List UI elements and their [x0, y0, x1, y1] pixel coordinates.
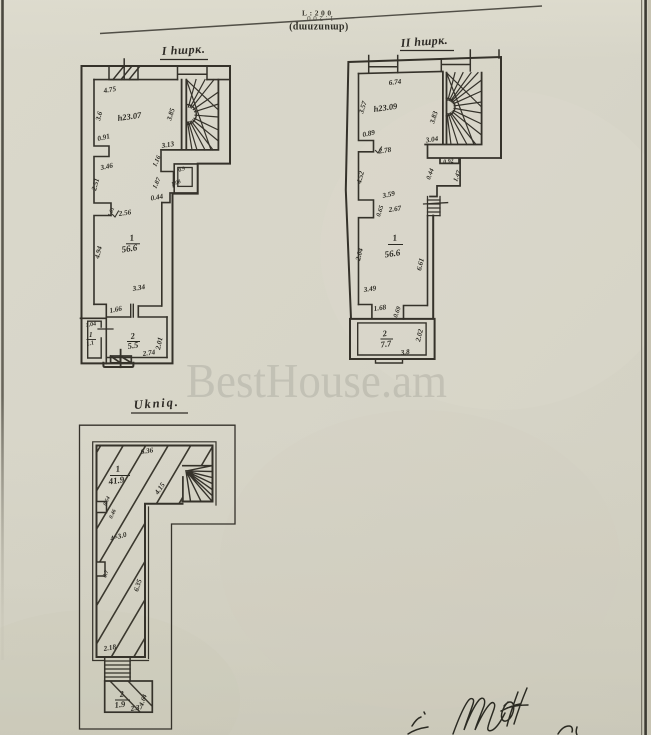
svg-text:3.8: 3.8	[399, 348, 410, 357]
svg-text:1: 1	[89, 331, 93, 339]
svg-text:1:200: 1:200	[305, 14, 334, 22]
svg-text:I hшрк.: I hшрк.	[160, 42, 205, 58]
svg-text:6.74: 6.74	[388, 78, 402, 87]
svg-text:(dmunznmp): (dmunznmp)	[289, 22, 349, 33]
svg-text:BestHouse.am: BestHouse.am	[186, 353, 447, 408]
